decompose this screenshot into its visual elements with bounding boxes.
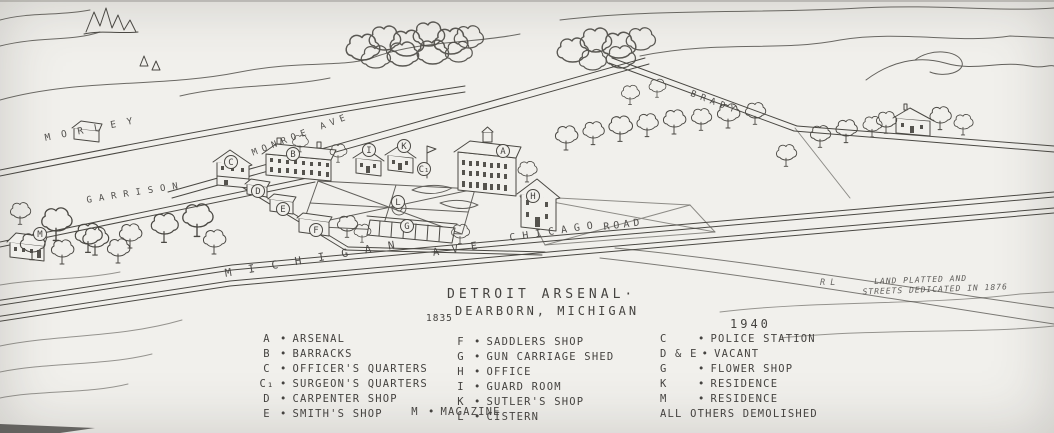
legend-label: GUARD ROOM xyxy=(487,381,562,393)
svg-text:H: H xyxy=(530,192,535,202)
legend-key: I xyxy=(452,381,470,393)
legend-label: CARPENTER SHOP xyxy=(293,393,398,405)
legend-item: G • GUN CARRIAGE SHED xyxy=(452,351,614,363)
bullet-separator: • xyxy=(698,378,706,390)
tree-icon xyxy=(954,114,973,135)
legend-column-1835: A • ARSENAL B • BARRACKS C • OFFICER'S Q… xyxy=(258,333,428,423)
legend-key: K xyxy=(660,378,694,390)
tree-icon xyxy=(836,120,857,143)
legend-item: C • POLICE STATION xyxy=(660,333,818,345)
stream-sketch xyxy=(866,52,1054,80)
legend-label: MAGAZINE xyxy=(441,407,501,418)
marker-office: H xyxy=(527,190,540,203)
bullet-separator: • xyxy=(280,408,288,420)
svg-text:L: L xyxy=(395,198,400,208)
svg-text:D: D xyxy=(255,187,260,197)
year-1835-label: 1835 xyxy=(426,314,453,324)
legend-label: FLOWER SHOP xyxy=(711,363,794,375)
legend-item: I • GUARD ROOM xyxy=(452,381,614,393)
artist-initials: R L xyxy=(820,279,835,288)
legend-item: E • SMITH'S SHOP xyxy=(258,408,428,420)
svg-text:G: G xyxy=(404,222,409,232)
marker-sutlers-shop: K xyxy=(398,140,411,153)
legend-label: POLICE STATION xyxy=(711,333,816,345)
mountain-icon xyxy=(84,8,160,70)
legend-item: M • RESIDENCE xyxy=(660,393,818,405)
legend-label: SADDLERS SHOP xyxy=(487,336,585,348)
legend-label: SMITH'S SHOP xyxy=(293,408,383,420)
bullet-separator: • xyxy=(280,348,288,360)
legend-label: RESIDENCE xyxy=(711,378,779,390)
tree-icon xyxy=(663,110,685,134)
bullet-separator: • xyxy=(474,351,482,363)
legend-label: ARSENAL xyxy=(293,333,346,345)
legend-key: C₁ xyxy=(258,378,276,390)
legend-label: OFFICE xyxy=(487,366,532,378)
legend-key: D & E xyxy=(660,348,698,360)
legend-key: B xyxy=(258,348,276,360)
marker-carpenter-shop: D xyxy=(252,185,265,198)
legend-label: RESIDENCE xyxy=(711,393,779,405)
legend-column-1940: C • POLICE STATION D & E • VACANT G • FL… xyxy=(660,333,818,420)
legend-label: OFFICER'S QUARTERS xyxy=(293,363,428,375)
bullet-separator: • xyxy=(698,333,706,345)
tree-icon xyxy=(555,126,577,150)
road-brady xyxy=(609,58,1054,198)
building-arsenal xyxy=(454,127,521,196)
bullet-separator: • xyxy=(280,363,288,375)
legend-item: C • OFFICER'S QUARTERS xyxy=(258,363,428,375)
legend-label: SUTLER'S SHOP xyxy=(487,396,585,408)
legend-label: BARRACKS xyxy=(293,348,353,360)
legend-key: H xyxy=(452,366,470,378)
svg-text:C₁: C₁ xyxy=(419,165,430,175)
bullet-separator: • xyxy=(474,381,482,393)
svg-text:F: F xyxy=(313,226,318,236)
legend-key: F xyxy=(452,336,470,348)
legend-key: D xyxy=(258,393,276,405)
tree-icon xyxy=(930,107,951,130)
tree-icon xyxy=(863,116,882,137)
legend-item: F • SADDLERS SHOP xyxy=(452,336,614,348)
marker-saddlers-shop: F xyxy=(310,224,323,237)
legend-item: G • FLOWER SHOP xyxy=(660,363,818,375)
marker-guard-room: I xyxy=(363,144,376,157)
legend-key: A xyxy=(258,333,276,345)
legend-label: VACANT xyxy=(714,348,759,360)
marker-barracks: B xyxy=(287,148,300,161)
marker-cistern: L xyxy=(392,196,405,209)
bullet-separator: • xyxy=(428,407,436,418)
tree-icon xyxy=(637,114,658,137)
bullet-separator: • xyxy=(698,393,706,405)
hills-sketch xyxy=(0,7,1054,100)
marker-gun-carriage-shed: G xyxy=(401,220,414,233)
tree-icon xyxy=(107,239,129,263)
tree-icon xyxy=(75,223,102,252)
tree-icon xyxy=(151,213,178,242)
tree-icon xyxy=(692,109,712,131)
legend-key: M xyxy=(660,393,694,405)
building-residence-east xyxy=(893,104,934,136)
legend-footer-demolished: ALL OTHERS DEMOLISHED xyxy=(660,408,818,420)
bullet-separator: • xyxy=(698,363,706,375)
legend-item-magazine: M • MAGAZINE xyxy=(406,407,501,418)
legend-key: C xyxy=(258,363,276,375)
svg-text:A: A xyxy=(500,147,506,157)
legend-key: E xyxy=(258,408,276,420)
svg-text:E: E xyxy=(280,205,285,215)
bullet-separator: • xyxy=(474,336,482,348)
building-office-house xyxy=(517,179,560,231)
svg-text:M: M xyxy=(37,230,43,240)
bullet-separator: • xyxy=(280,393,288,405)
svg-text:B: B xyxy=(290,150,295,160)
tree-icon xyxy=(649,79,666,97)
legend-key: G xyxy=(660,363,694,375)
tree-icon xyxy=(609,116,633,141)
tree-icon xyxy=(777,145,797,167)
tree-icon xyxy=(583,122,604,145)
svg-text:I: I xyxy=(366,146,371,156)
tree-icon xyxy=(83,227,109,255)
tree-icon xyxy=(51,240,73,264)
tree-icon xyxy=(811,126,831,148)
tree-icon xyxy=(518,161,537,182)
marker-arsenal: A xyxy=(497,145,510,158)
marker-magazine: M xyxy=(34,228,47,241)
legend-item: A • ARSENAL xyxy=(258,333,428,345)
marker-officers-quarters: C xyxy=(225,156,238,169)
legend-item: B • BARRACKS xyxy=(258,348,428,360)
tree-icon xyxy=(203,230,225,254)
bullet-separator: • xyxy=(280,333,288,345)
tree-icon xyxy=(877,112,897,134)
legend-label: SURGEON'S QUARTERS xyxy=(293,378,428,390)
legend-key: M xyxy=(406,407,424,418)
tree-icon xyxy=(622,85,640,104)
tree-icon xyxy=(11,203,31,225)
legend-key: G xyxy=(452,351,470,363)
bullet-separator: • xyxy=(702,348,710,360)
marker-smiths-shop: E xyxy=(277,203,290,216)
legend-item: D • CARPENTER SHOP xyxy=(258,393,428,405)
legend-label: GUN CARRIAGE SHED xyxy=(487,351,615,363)
map-title-line1: DETROIT ARSENAL· xyxy=(447,288,636,301)
tree-icon xyxy=(119,224,141,248)
legend-item: C₁ • SURGEON'S QUARTERS xyxy=(258,378,428,390)
bullet-separator: • xyxy=(280,378,288,390)
legend-key: C xyxy=(660,333,694,345)
arsenal-pictorial-map: M C B C₁ D E F xyxy=(0,0,1054,433)
bullet-separator: • xyxy=(474,366,482,378)
legend-item: K • RESIDENCE xyxy=(660,378,818,390)
legend-item: D & E • VACANT xyxy=(660,348,818,360)
svg-text:K: K xyxy=(401,142,407,152)
legend-item: H • OFFICE xyxy=(452,366,614,378)
map-title-line2: DEARBORN, MICHIGAN xyxy=(455,305,639,317)
marker-surgeons-quarters: C₁ xyxy=(418,163,431,176)
svg-text:C: C xyxy=(228,158,233,168)
year-1940-label: 1940 xyxy=(730,318,771,330)
